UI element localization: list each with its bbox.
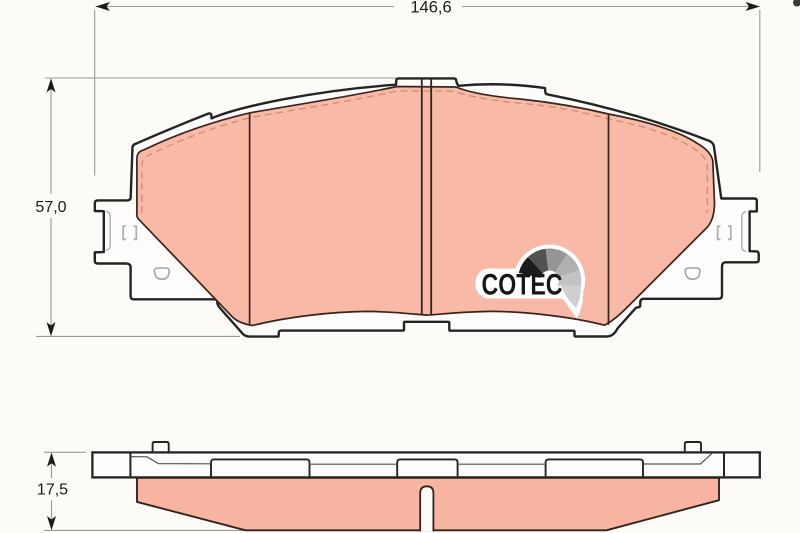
- svg-text:17,5: 17,5: [37, 482, 68, 499]
- svg-text:COTEC: COTEC: [482, 269, 563, 302]
- svg-text:57,0: 57,0: [35, 199, 66, 216]
- svg-text:146,6: 146,6: [410, 0, 451, 17]
